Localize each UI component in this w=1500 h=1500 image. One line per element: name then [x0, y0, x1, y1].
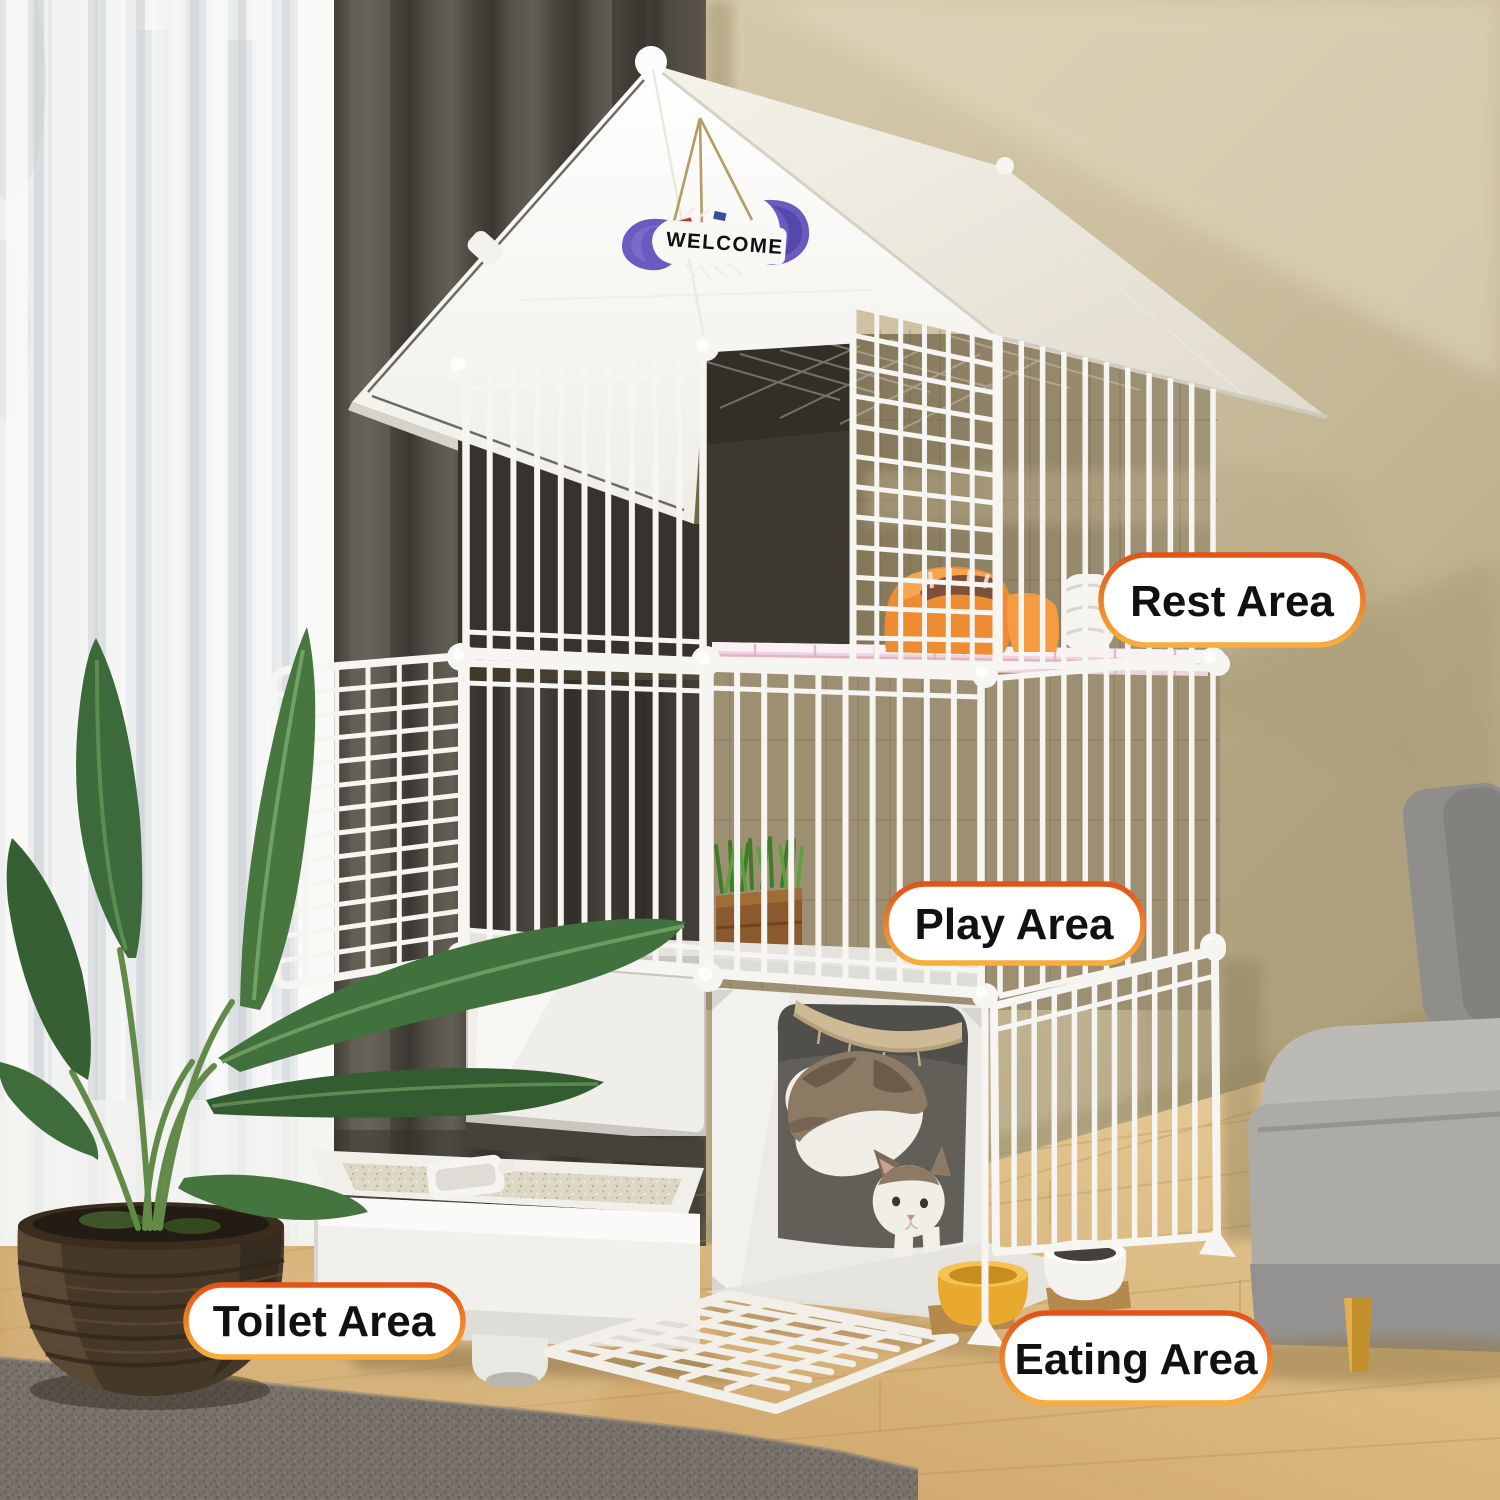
svg-text:Eating Area: Eating Area — [1015, 1335, 1258, 1384]
svg-text:Rest Area: Rest Area — [1130, 577, 1334, 626]
svg-text:Play Area: Play Area — [915, 900, 1114, 949]
svg-text:Toilet Area: Toilet Area — [213, 1297, 436, 1346]
